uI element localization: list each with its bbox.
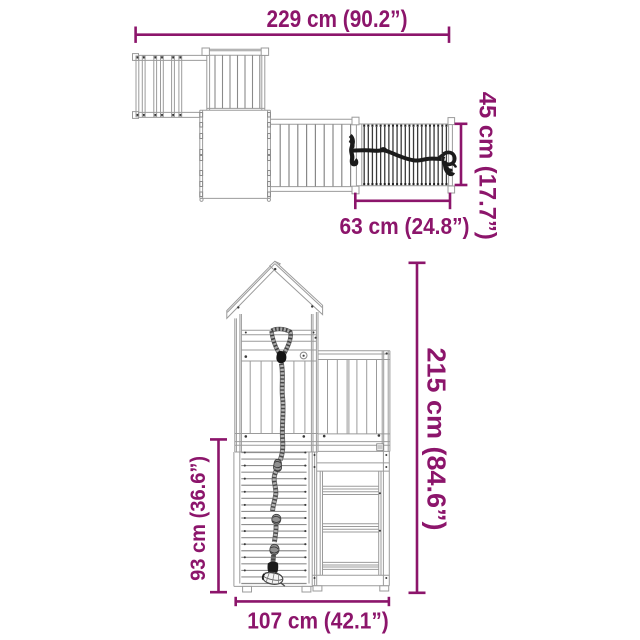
svg-text:215 cm (84.6”): 215 cm (84.6”) — [422, 348, 452, 531]
svg-text:229 cm (90.2”): 229 cm (90.2”) — [267, 6, 408, 33]
svg-text:63 cm (24.8”): 63 cm (24.8”) — [340, 213, 470, 239]
svg-text:93 cm (36.6”): 93 cm (36.6”) — [187, 456, 210, 581]
svg-text:107 cm (42.1”): 107 cm (42.1”) — [247, 607, 389, 633]
svg-text:45 cm (17.7”): 45 cm (17.7”) — [474, 92, 501, 240]
